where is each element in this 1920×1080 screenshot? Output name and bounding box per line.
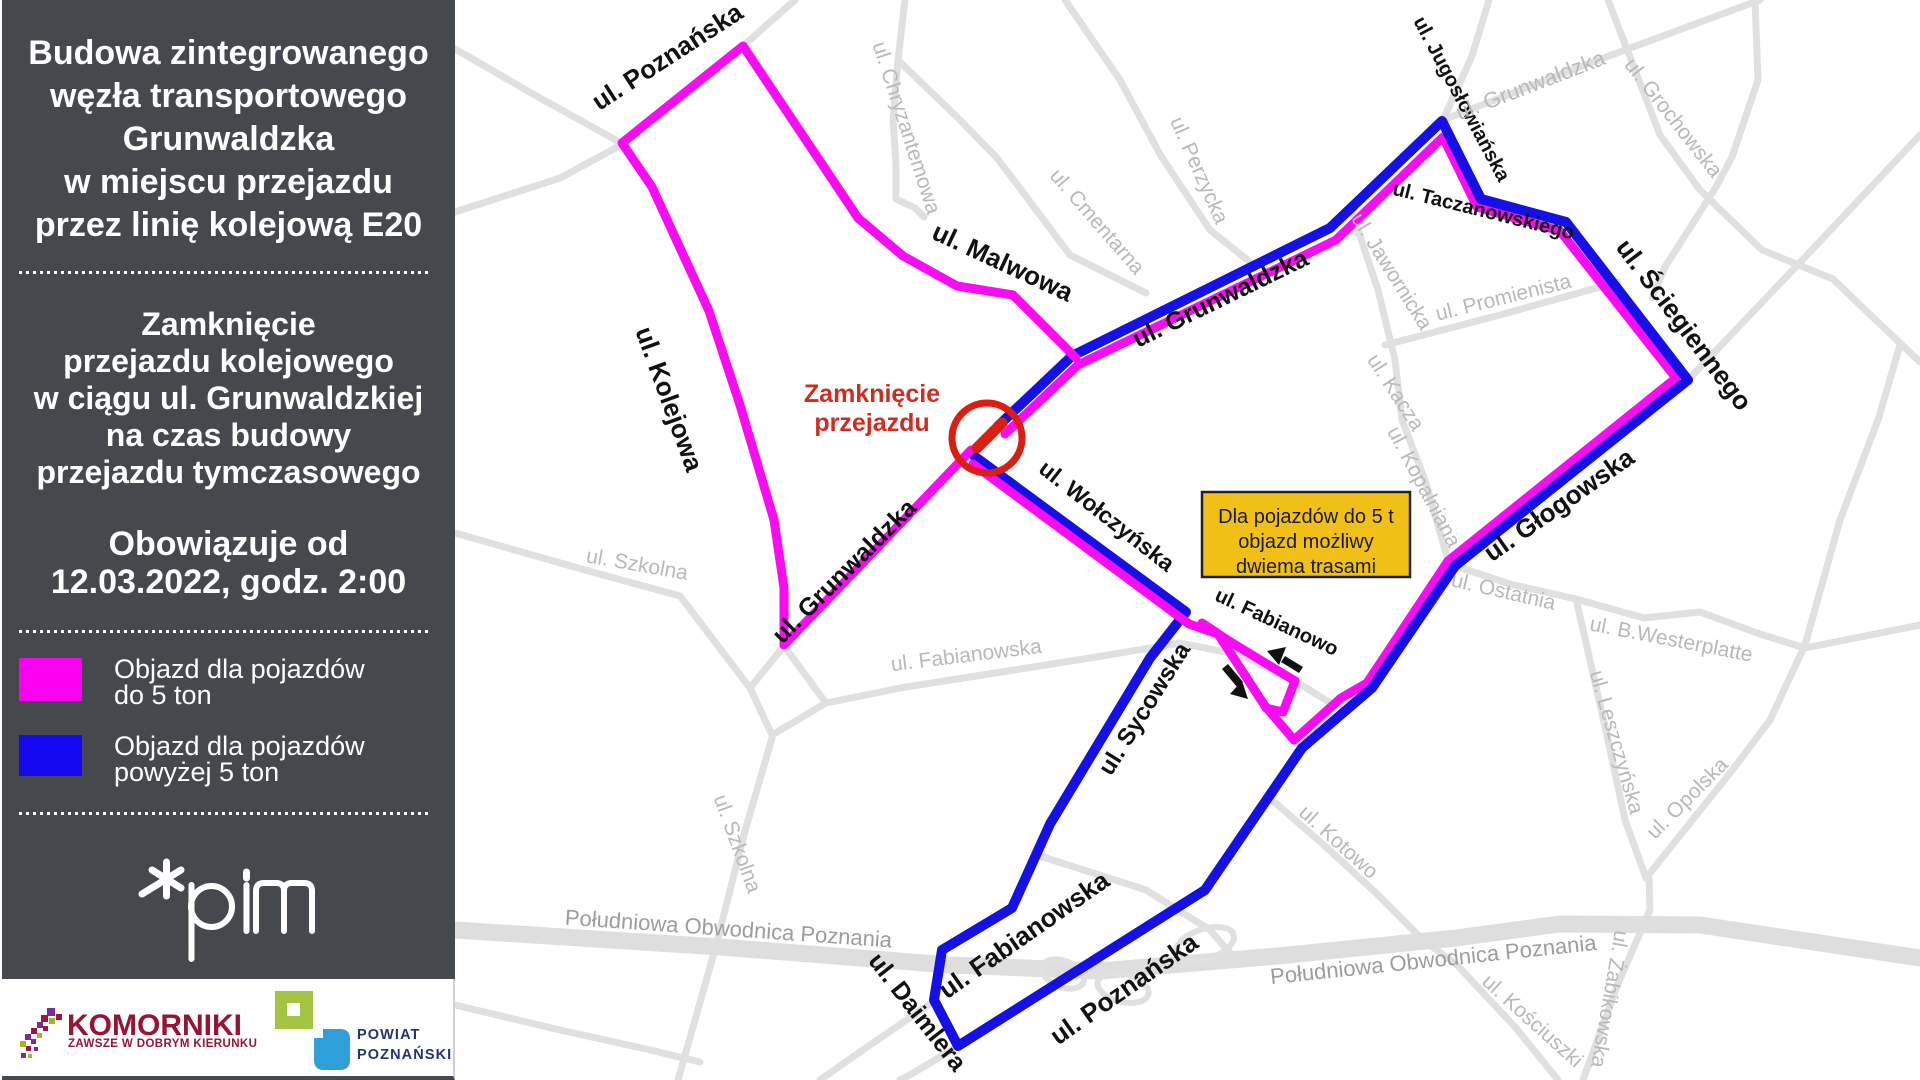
svg-text:ul. Grunwaldzka: ul. Grunwaldzka — [767, 493, 923, 649]
svg-text:ul. Głogowska: ul. Głogowska — [1478, 441, 1640, 567]
svg-text:dwiema trasami: dwiema trasami — [1236, 556, 1376, 578]
svg-text:ul. Szkolna: ul. Szkolna — [585, 544, 690, 585]
svg-text:Dla pojazdów do 5 t: Dla pojazdów do 5 t — [1218, 506, 1394, 528]
svg-text:ul. Kotowo: ul. Kotowo — [1294, 801, 1382, 884]
svg-text:ul. Grochowska: ul. Grochowska — [1620, 54, 1727, 182]
svg-text:ul. Kościuszki: ul. Kościuszki — [1477, 970, 1587, 1072]
svg-text:ul. Cmentarna: ul. Cmentarna — [1045, 164, 1149, 279]
svg-text:ul. Szkolna: ul. Szkolna — [709, 792, 766, 897]
svg-text:objazd możliwy: objazd możliwy — [1238, 531, 1374, 553]
svg-text:ul. Jawornicka: ul. Jawornicka — [1347, 209, 1437, 334]
svg-text:ul. Grunwaldzka: ul. Grunwaldzka — [1452, 45, 1609, 125]
svg-text:ul. Kolejowa: ul. Kolejowa — [629, 323, 709, 476]
svg-text:Zamknięcie: Zamknięcie — [804, 380, 940, 408]
svg-text:ul. Grunwaldzka: ul. Grunwaldzka — [1128, 244, 1314, 354]
svg-text:przejazdu: przejazdu — [814, 409, 929, 437]
svg-text:ul. Ostatnia: ul. Ostatnia — [1449, 569, 1558, 615]
svg-text:ul. Taczanowskiego: ul. Taczanowskiego — [1390, 178, 1576, 244]
